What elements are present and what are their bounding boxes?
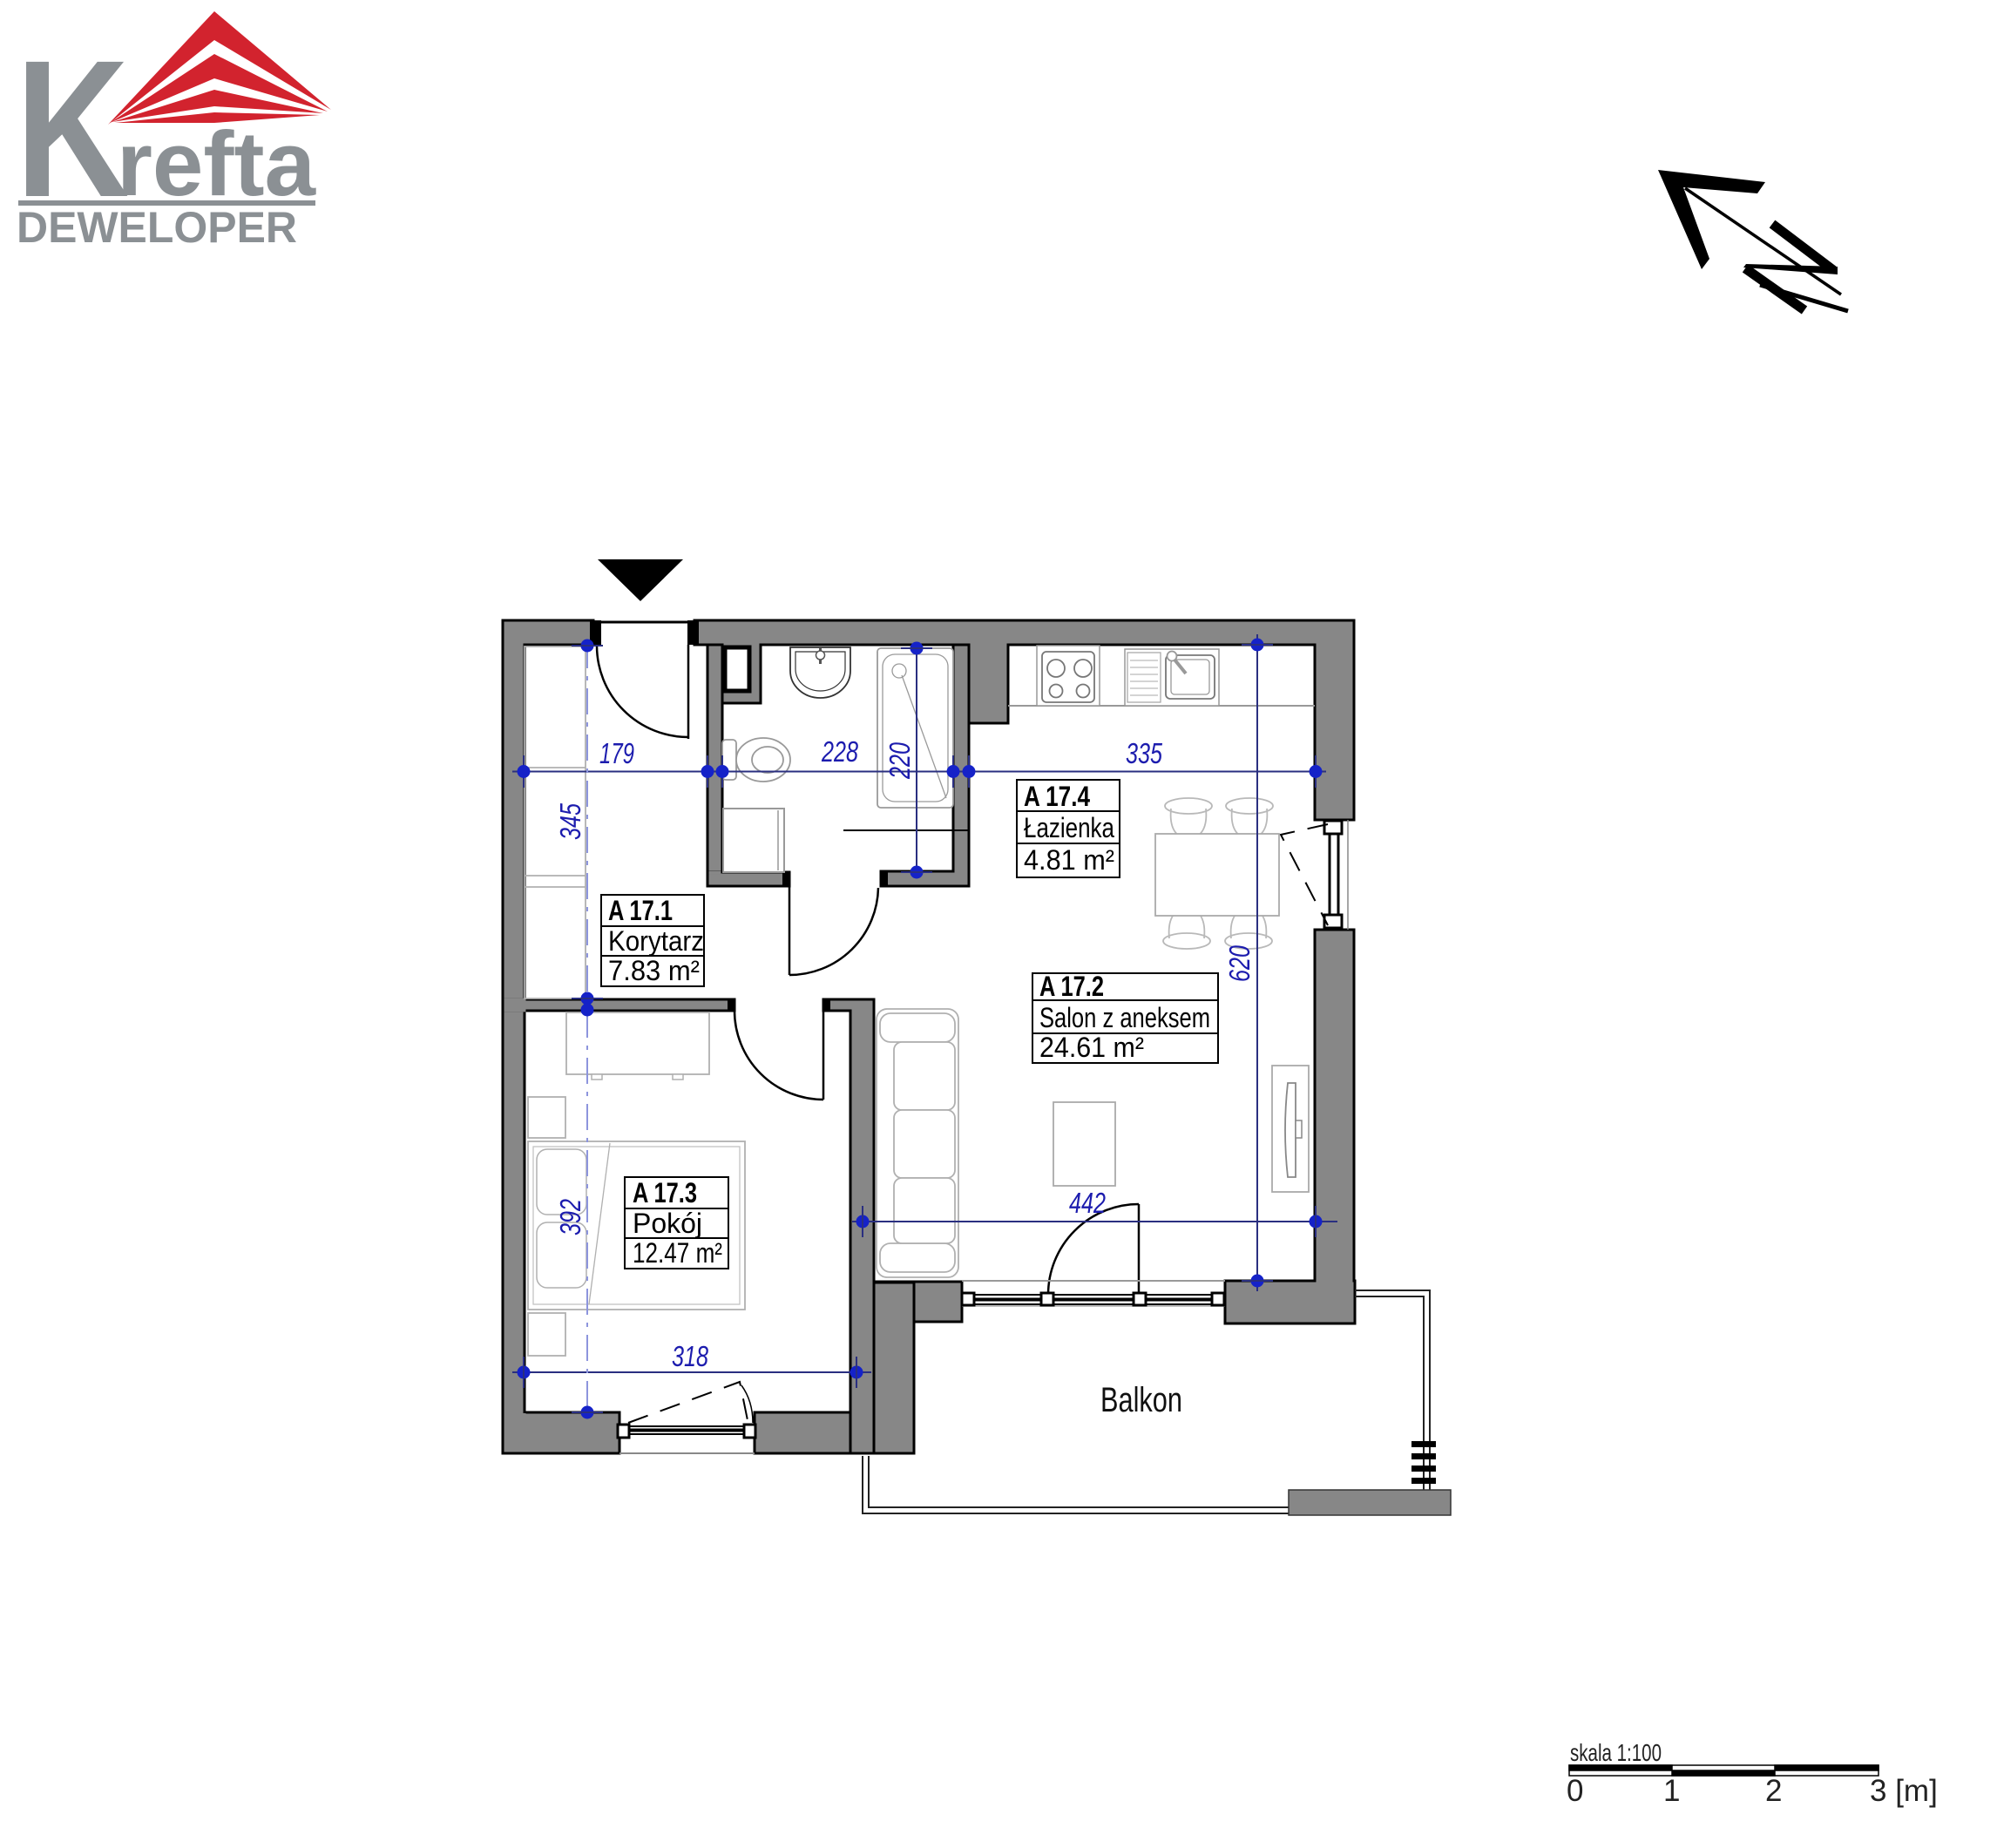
svg-text:refta: refta <box>117 113 317 215</box>
svg-text:Salon z aneksem: Salon z aneksem <box>1039 1002 1210 1033</box>
svg-text:2: 2 <box>1765 1774 1782 1808</box>
svg-text:A 17.3: A 17.3 <box>633 1177 697 1208</box>
svg-text:A 17.4: A 17.4 <box>1024 781 1090 812</box>
svg-text:Balkon: Balkon <box>1100 1381 1182 1419</box>
svg-text:318: 318 <box>672 1340 708 1372</box>
svg-text:skala 1:100: skala 1:100 <box>1570 1739 1662 1766</box>
svg-text:1: 1 <box>1663 1774 1680 1808</box>
svg-text:24.61 m²: 24.61 m² <box>1039 1032 1144 1063</box>
svg-text:620: 620 <box>1223 945 1256 982</box>
svg-text:228: 228 <box>821 735 858 768</box>
svg-text:12.47 m²: 12.47 m² <box>633 1237 722 1269</box>
svg-text:A 17.1: A 17.1 <box>608 895 673 926</box>
svg-text:7.83 m²: 7.83 m² <box>608 955 700 986</box>
svg-text:3 [m]: 3 [m] <box>1870 1774 1938 1808</box>
svg-text:0: 0 <box>1567 1774 1583 1808</box>
svg-text:442: 442 <box>1069 1187 1106 1219</box>
svg-text:335: 335 <box>1126 737 1162 769</box>
svg-text:392: 392 <box>554 1199 586 1235</box>
svg-text:179: 179 <box>599 737 634 769</box>
svg-text:Łazienka: Łazienka <box>1024 812 1114 843</box>
svg-text:Pokój: Pokój <box>633 1208 702 1239</box>
svg-text:345: 345 <box>554 803 586 840</box>
svg-text:Korytarz: Korytarz <box>608 925 704 957</box>
svg-text:DEWELOPER: DEWELOPER <box>17 203 297 252</box>
svg-text:4.81 m²: 4.81 m² <box>1024 844 1114 876</box>
svg-text:A 17.2: A 17.2 <box>1039 971 1104 1002</box>
svg-text:220: 220 <box>883 742 916 780</box>
